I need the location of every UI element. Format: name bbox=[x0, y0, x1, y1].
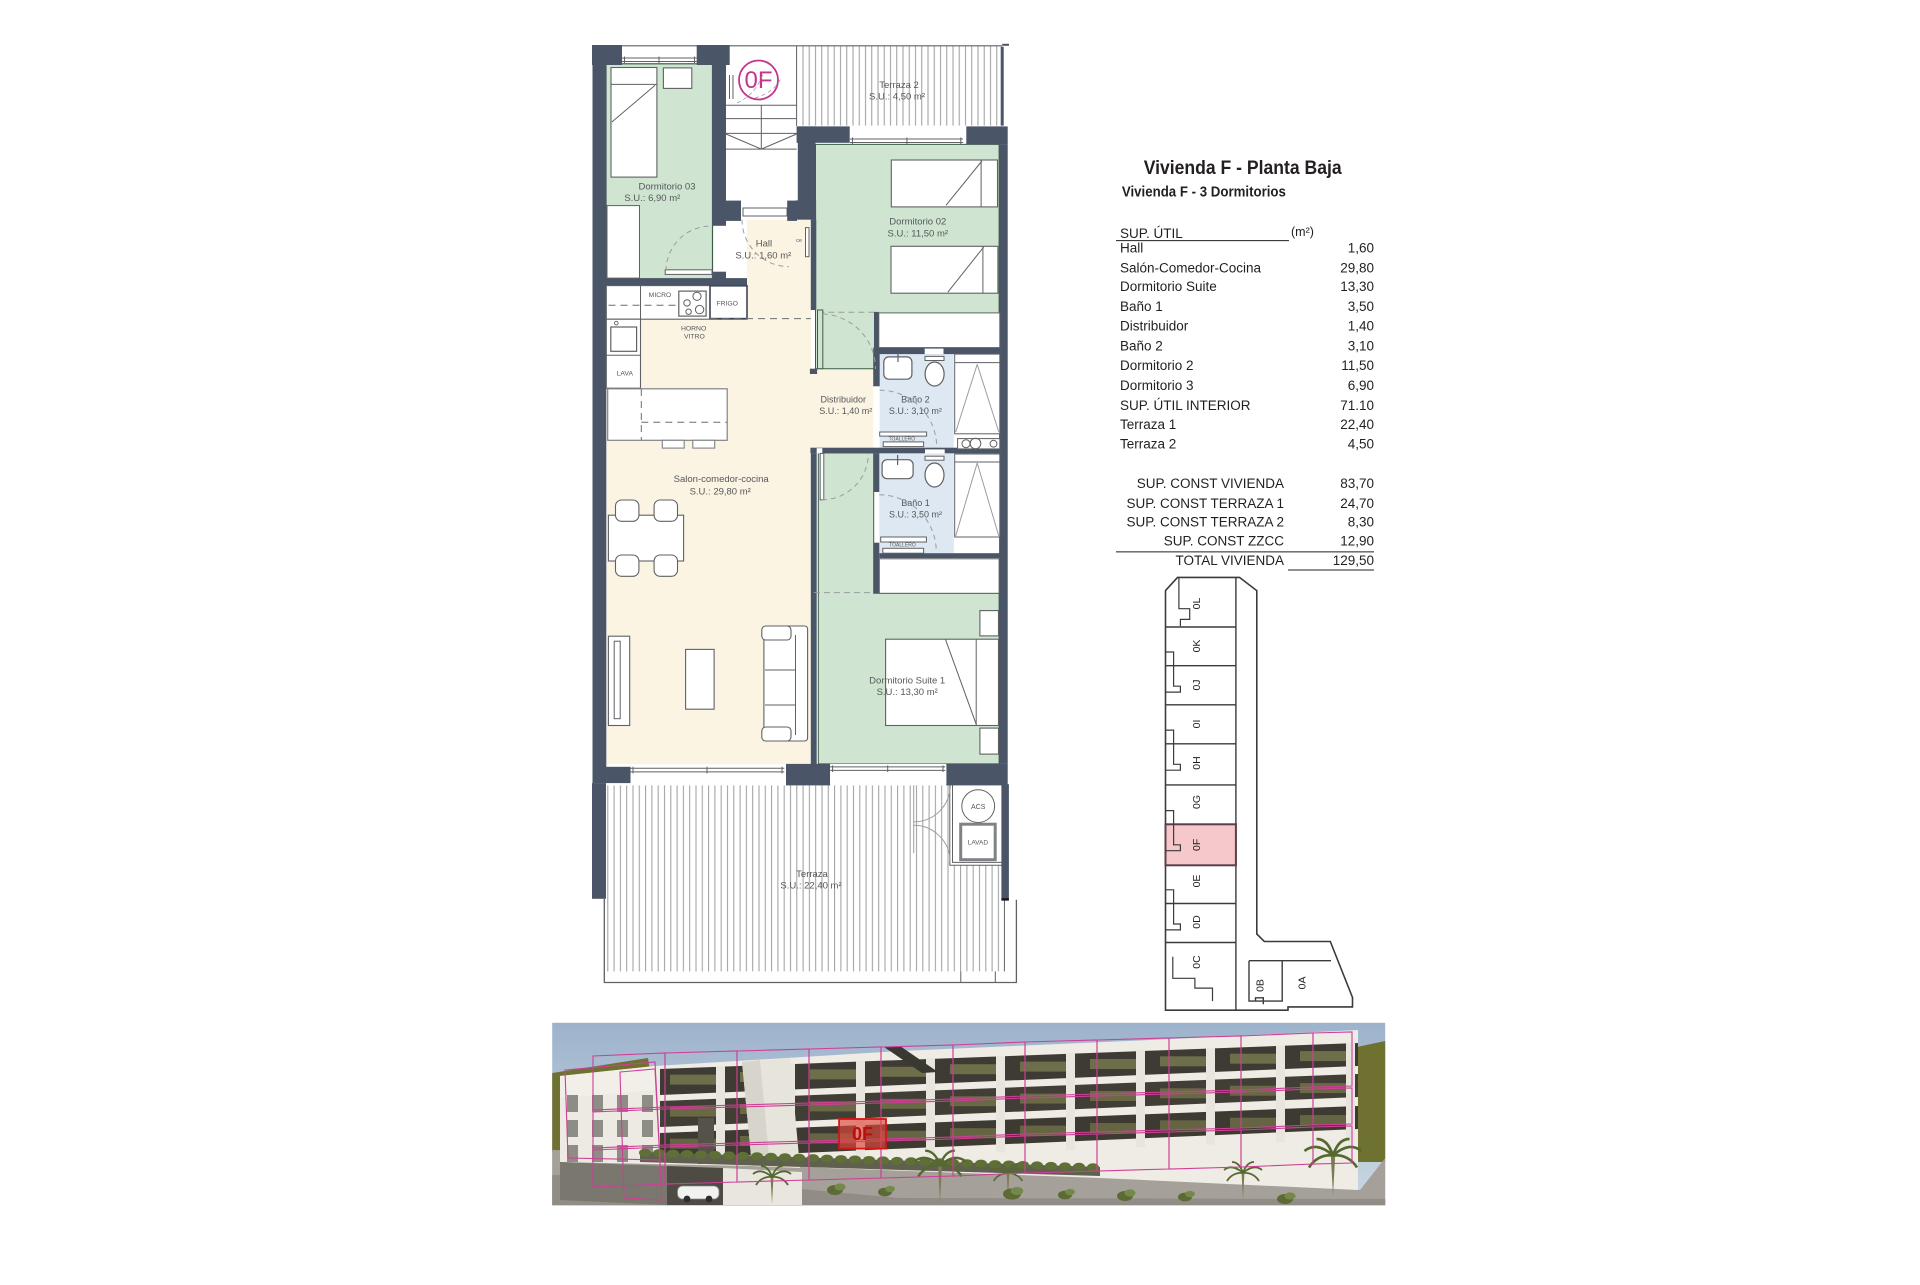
svg-text:ACS: ACS bbox=[971, 804, 986, 811]
svg-text:S.U.: 11,50 m²: S.U.: 11,50 m² bbox=[888, 229, 949, 240]
svg-text:29,80: 29,80 bbox=[1340, 260, 1374, 275]
svg-text:0D: 0D bbox=[1191, 915, 1203, 929]
svg-text:Hall: Hall bbox=[1120, 241, 1143, 256]
svg-text:S.U.: 6,90 m²: S.U.: 6,90 m² bbox=[624, 193, 680, 204]
svg-text:Salón-Comedor-Cocina: Salón-Comedor-Cocina bbox=[1120, 260, 1262, 275]
svg-text:S.U.: 1,40 m²: S.U.: 1,40 m² bbox=[819, 406, 872, 416]
svg-text:LAVAD: LAVAD bbox=[968, 840, 989, 847]
svg-text:TOALLERO: TOALLERO bbox=[889, 542, 916, 548]
svg-text:0J: 0J bbox=[1191, 679, 1203, 690]
svg-text:Dormitorio Suite: Dormitorio Suite bbox=[1120, 279, 1217, 294]
svg-text:1,40: 1,40 bbox=[1348, 319, 1374, 334]
svg-text:SUP. CONST TERRAZA 2: SUP. CONST TERRAZA 2 bbox=[1126, 515, 1284, 530]
svg-text:S.U.: 1,60 m²: S.U.: 1,60 m² bbox=[735, 250, 791, 261]
svg-text:0A: 0A bbox=[1297, 976, 1309, 989]
svg-text:129,50: 129,50 bbox=[1333, 553, 1374, 568]
svg-text:Salon-comedor-cocina: Salon-comedor-cocina bbox=[674, 474, 770, 485]
svg-text:Dormitorio Suite 1: Dormitorio Suite 1 bbox=[869, 675, 945, 686]
svg-text:3,50: 3,50 bbox=[1348, 299, 1374, 314]
svg-text:22,40: 22,40 bbox=[1340, 417, 1374, 432]
svg-text:Vivienda F - Planta Baja: Vivienda F - Planta Baja bbox=[1144, 157, 1342, 179]
svg-text:Dormitorio 02: Dormitorio 02 bbox=[889, 216, 946, 227]
svg-text:13,30: 13,30 bbox=[1340, 279, 1374, 294]
svg-text:0F: 0F bbox=[744, 67, 772, 94]
svg-text:S.U.: 3,50 m²: S.U.: 3,50 m² bbox=[889, 510, 942, 520]
svg-text:0E: 0E bbox=[1191, 875, 1203, 888]
svg-text:(m²): (m²) bbox=[1291, 225, 1314, 239]
svg-text:Terraza 1: Terraza 1 bbox=[1120, 417, 1176, 432]
svg-text:HORNO: HORNO bbox=[681, 325, 706, 332]
svg-text:Distribuidor: Distribuidor bbox=[821, 395, 867, 405]
svg-text:Distribuidor: Distribuidor bbox=[1120, 319, 1189, 334]
svg-text:12,90: 12,90 bbox=[1340, 534, 1374, 549]
svg-text:1,60: 1,60 bbox=[1348, 241, 1374, 256]
svg-text:S.U.: 13,30 m²: S.U.: 13,30 m² bbox=[877, 687, 938, 698]
svg-text:SUP. ÚTIL INTERIOR: SUP. ÚTIL INTERIOR bbox=[1120, 398, 1251, 413]
svg-text:Vivienda F - 3 Dormitorios: Vivienda F - 3 Dormitorios bbox=[1122, 185, 1286, 201]
svg-text:FRIGO: FRIGO bbox=[716, 301, 738, 308]
svg-text:Baño 1: Baño 1 bbox=[901, 498, 930, 508]
svg-text:0H: 0H bbox=[1191, 756, 1203, 769]
svg-text:0C: 0C bbox=[1191, 955, 1203, 969]
svg-text:Dormitorio 2: Dormitorio 2 bbox=[1120, 358, 1194, 373]
svg-text:SUP. CONST VIVIENDA: SUP. CONST VIVIENDA bbox=[1137, 476, 1284, 491]
svg-text:6,90: 6,90 bbox=[1348, 378, 1374, 393]
svg-text:8,30: 8,30 bbox=[1348, 515, 1374, 530]
svg-text:S.U.: 4,50 m²: S.U.: 4,50 m² bbox=[869, 92, 925, 103]
svg-text:TOTAL VIVIENDA: TOTAL VIVIENDA bbox=[1175, 553, 1284, 568]
svg-text:0F: 0F bbox=[852, 1124, 873, 1144]
svg-text:Dormitorio 3: Dormitorio 3 bbox=[1120, 378, 1194, 393]
svg-text:0B: 0B bbox=[1254, 979, 1266, 992]
svg-text:S.U.: 22,40 m²: S.U.: 22,40 m² bbox=[780, 881, 841, 892]
svg-text:VITRO: VITRO bbox=[684, 333, 705, 340]
svg-text:0I: 0I bbox=[1191, 720, 1203, 729]
svg-text:Baño 1: Baño 1 bbox=[1120, 299, 1163, 314]
svg-text:11,50: 11,50 bbox=[1341, 358, 1374, 373]
svg-text:Baño 2: Baño 2 bbox=[1120, 339, 1163, 354]
svg-text:71.10: 71.10 bbox=[1340, 398, 1374, 413]
svg-text:Hall: Hall bbox=[756, 239, 772, 250]
svg-text:0K: 0K bbox=[1191, 640, 1203, 653]
svg-text:S.U.: 29,80 m²: S.U.: 29,80 m² bbox=[690, 486, 751, 497]
svg-text:0F: 0F bbox=[1191, 839, 1203, 851]
svg-text:S.U.: 3,10 m²: S.U.: 3,10 m² bbox=[889, 406, 942, 416]
svg-text:0L: 0L bbox=[1191, 598, 1203, 610]
svg-text:Terraza 2: Terraza 2 bbox=[879, 80, 919, 91]
svg-text:4,50: 4,50 bbox=[1348, 437, 1374, 452]
svg-text:83,70: 83,70 bbox=[1340, 476, 1374, 491]
svg-text:0G: 0G bbox=[1191, 795, 1203, 809]
svg-text:Terraza: Terraza bbox=[796, 869, 828, 880]
svg-text:SUP. CONST ZZCC: SUP. CONST ZZCC bbox=[1164, 534, 1285, 549]
svg-text:LAVA: LAVA bbox=[617, 370, 634, 377]
svg-text:SUP. CONST TERRAZA 1: SUP. CONST TERRAZA 1 bbox=[1126, 496, 1284, 511]
svg-text:3,10: 3,10 bbox=[1348, 339, 1374, 354]
svg-text:Terraza 2: Terraza 2 bbox=[1120, 437, 1176, 452]
svg-text:Dormitorio 03: Dormitorio 03 bbox=[638, 181, 695, 192]
svg-text:SUP. ÚTIL: SUP. ÚTIL bbox=[1120, 226, 1183, 241]
svg-text:24,70: 24,70 bbox=[1340, 496, 1374, 511]
svg-text:MICRO: MICRO bbox=[649, 292, 672, 299]
svg-text:TOALLERO: TOALLERO bbox=[889, 436, 916, 442]
svg-text:ce: ce bbox=[796, 238, 802, 244]
